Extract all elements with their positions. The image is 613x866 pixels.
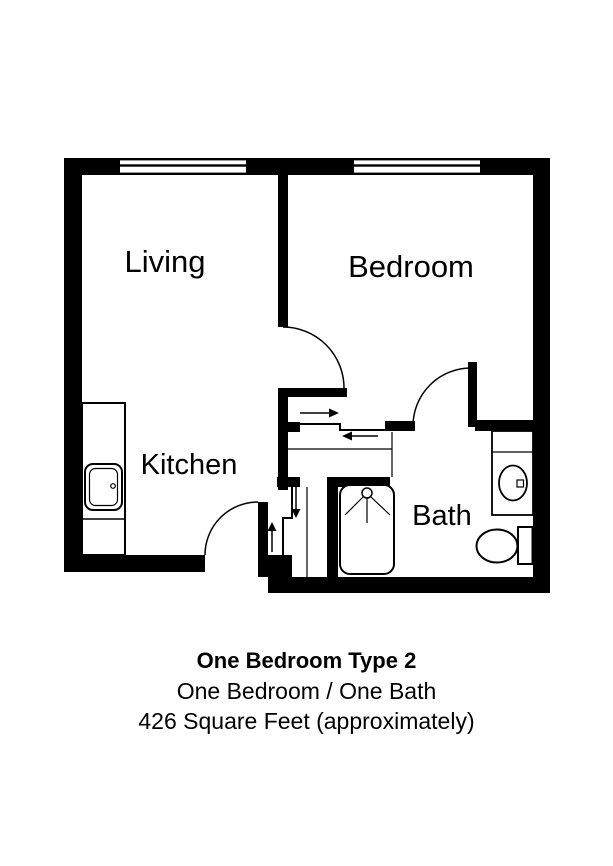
entry-door-arc [205,502,258,555]
wall-bath-north [475,420,533,431]
wall-left [64,158,82,572]
slide-up-arrow-icon [268,522,277,552]
bath-door-arc [413,368,471,426]
wall-closet-south-left [277,477,300,487]
wall-bath-door-stub [468,362,477,427]
toilet-bowl [477,530,518,563]
vanity-faucet-icon [517,480,524,487]
kitchen-sink [85,464,122,510]
toilet [477,527,533,564]
bedroom-room-label: Bedroom [348,249,474,284]
wall-closet-nub [288,422,300,432]
wall-entry-jamb [258,502,268,562]
kitchen-counter [82,403,125,555]
wall-top-middle [246,158,354,175]
slide-right-arrow-icon [300,409,339,418]
wall-tub-west [327,487,338,577]
living-window [120,158,246,175]
kitchen-room-label: Kitchen [141,449,238,481]
wall-hall-north [278,388,347,397]
floor-plan: Living Bedroom Kitchen Bath [0,0,613,640]
wall-living-bedroom-divider [278,175,288,327]
living-room-label: Living [125,244,206,279]
wall-closet-right [385,421,415,431]
floor-plan-page: Living Bedroom Kitchen Bath One Bedroom … [0,0,613,866]
faucet-icon [111,484,116,489]
wall-entry-step [258,555,292,577]
wall-right [533,158,550,593]
bypass-panels-vertical [283,487,292,555]
plan-area: 426 Square Feet (approximately) [0,706,613,736]
vanity-sink [492,431,533,515]
bedroom-window [354,158,480,175]
hall-closet-bypass-door [288,409,392,478]
slide-left-arrow-icon [342,432,378,441]
wall-bottom-band [268,577,550,593]
showerhead-icon [362,488,372,498]
bathtub-shower [340,485,394,574]
bedroom-door-arc [283,327,344,388]
wall-bottom-living [64,555,205,572]
plan-caption: One Bedroom Type 2 One Bedroom / One Bat… [0,646,613,736]
wall-hall-west [278,388,288,490]
toilet-tank [518,527,533,564]
bath-room-label: Bath [412,500,472,532]
bypass-panels-horizontal [300,424,385,430]
plan-title: One Bedroom Type 2 [0,646,613,676]
plan-subtitle: One Bedroom / One Bath [0,676,613,706]
